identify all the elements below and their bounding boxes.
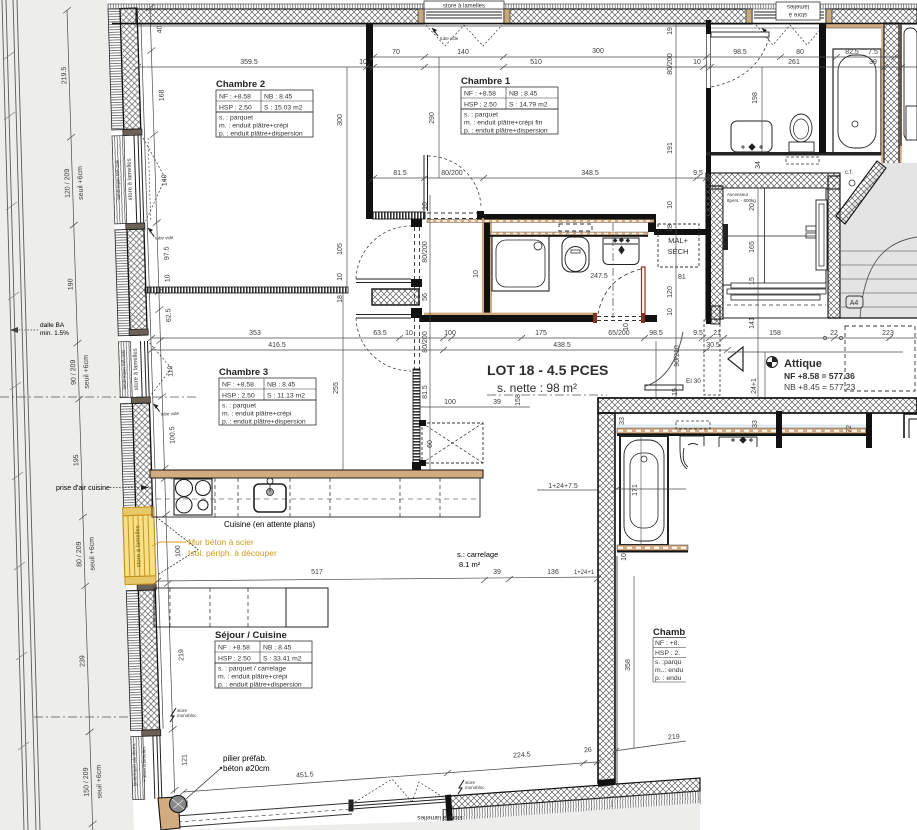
svg-text:c.f.: c.f. [845,170,853,176]
svg-text:100: 100 [444,330,456,337]
svg-text:7.5: 7.5 [868,49,878,56]
svg-text:300: 300 [337,114,344,126]
svg-text:175: 175 [535,330,547,337]
svg-text:NB : 8.45: NB : 8.45 [509,91,538,98]
svg-text:s.: carrelage: s.: carrelage [457,550,498,559]
svg-text:190: 190 [67,278,74,290]
svg-text:219: 219 [178,649,185,661]
svg-text:NF +8.58 = 577.36: NF +8.58 = 577.36 [784,371,855,381]
svg-text:191: 191 [667,142,674,154]
svg-text:béton ø20cm: béton ø20cm [223,764,270,773]
svg-text:56: 56 [422,293,429,301]
svg-text:19: 19 [667,27,674,35]
svg-text:21: 21 [713,330,721,337]
svg-text:p. : enduit plâtre+dispersion: p. : enduit plâtre+dispersion [218,682,302,689]
svg-text:72: 72 [846,425,853,433]
svg-text:Chambre 2: Chambre 2 [216,79,265,90]
svg-text:store à lamelles: store à lamelles [416,814,462,821]
svg-text:1+24+1: 1+24+1 [574,570,595,576]
svg-text:tube vide: tube vide [440,36,459,41]
svg-text:65/200: 65/200 [608,330,630,337]
svg-text:100: 100 [444,399,456,406]
svg-text:255: 255 [333,382,340,394]
svg-text:NF : +8.: NF : +8. [655,640,679,647]
svg-text:monobloc: monobloc [465,785,485,790]
svg-text:NB : 8.45: NB : 8.45 [263,645,292,652]
svg-text:353: 353 [249,330,261,337]
svg-text:10: 10 [693,59,701,66]
svg-text:150 / 209: 150 / 209 [83,767,91,797]
svg-text:97.5: 97.5 [163,246,170,260]
svg-text:El 30: El 30 [686,378,701,385]
svg-text:120: 120 [667,286,674,298]
svg-text:219.5: 219.5 [61,66,69,84]
svg-text:8pers. - 800kg: 8pers. - 800kg [727,198,756,203]
svg-text:m. : enduit plâtre+crépi: m. : enduit plâtre+crépi [219,123,289,130]
svg-text:10: 10 [359,59,367,66]
svg-text:81.5: 81.5 [422,385,429,399]
svg-text:15: 15 [749,277,756,285]
svg-text:33: 33 [752,420,759,428]
svg-text:98.5: 98.5 [733,49,747,56]
svg-text:lamelles: lamelles [787,3,809,9]
svg-text:40: 40 [157,25,164,33]
svg-text:80: 80 [796,49,804,56]
svg-text:80/200: 80/200 [422,241,429,263]
svg-text:416.5: 416.5 [268,342,286,349]
svg-text:10: 10 [473,270,480,278]
svg-text:seuil +6cm: seuil +6cm [83,355,91,389]
svg-text:165: 165 [749,241,756,253]
svg-text:Cuisine (en attente plans): Cuisine (en attente plans) [224,520,316,529]
svg-text:NF : +8.58: NF : +8.58 [464,91,496,98]
svg-text:MAL+: MAL+ [668,236,688,245]
svg-text:store à lamelles: store à lamelles [443,4,485,10]
svg-text:348.5: 348.5 [581,170,599,177]
svg-text:141: 141 [749,317,756,329]
svg-text:223: 223 [882,330,894,337]
svg-text:26: 26 [584,747,592,755]
svg-text:195: 195 [73,454,80,466]
svg-text:100: 100 [175,545,182,557]
svg-text:121: 121 [181,754,188,766]
svg-text:81.5: 81.5 [393,170,407,177]
svg-text:60: 60 [427,440,434,448]
svg-text:62.5: 62.5 [165,308,172,322]
svg-text:s. : parquet / carrelage: s. : parquet / carrelage [218,666,286,673]
svg-text:A4: A4 [850,300,859,307]
svg-text:monobloc: monobloc [177,713,197,718]
svg-text:tube vide: tube vide [155,235,174,241]
svg-text:S : 33.41 m2: S : 33.41 m2 [263,656,302,663]
svg-text:247.5: 247.5 [590,273,608,280]
svg-text:80/200: 80/200 [441,170,463,177]
svg-text:NF : +8.58: NF : +8.58 [218,645,250,652]
svg-text:22: 22 [830,330,838,337]
svg-text:90 / 209: 90 / 209 [70,359,78,385]
svg-text:s. : parquet: s. : parquet [222,403,256,410]
svg-text:81: 81 [678,274,686,281]
svg-text:9.5: 9.5 [693,330,703,337]
svg-text:98.5: 98.5 [649,330,663,337]
svg-text:168: 168 [159,89,166,101]
svg-text:m..: endu: m..: endu [655,667,684,674]
svg-text:m. : enduit plâtre+crépi: m. : enduit plâtre+crépi [218,674,288,681]
svg-text:m. : enduit plâtre+crépi: m. : enduit plâtre+crépi [222,411,292,418]
svg-text:39: 39 [493,569,501,576]
svg-text:p. : endu: p. : endu [655,675,682,682]
svg-text:359.5: 359.5 [240,59,258,66]
svg-text:S : 11.13 m2: S : 11.13 m2 [267,393,305,400]
svg-text:30.5: 30.5 [706,342,720,349]
svg-text:28: 28 [667,224,674,232]
svg-text:158: 158 [769,330,781,337]
svg-text:NB : 8.45: NB : 8.45 [267,382,296,389]
svg-text:HSP : 2.: HSP : 2. [655,650,680,657]
svg-text:Chambre 1: Chambre 1 [461,76,511,87]
svg-text:290: 290 [429,112,436,124]
svg-text:seuil +6cm: seuil +6cm [89,537,97,571]
svg-text:10: 10 [667,201,674,209]
svg-text:120 / 209: 120 / 209 [64,169,72,199]
svg-text:dalle BA: dalle BA [40,322,65,329]
svg-text:s. : parquet: s. : parquet [219,115,253,122]
svg-text:100.5: 100.5 [169,426,177,444]
svg-text:140: 140 [457,49,469,56]
svg-text:HSP : 2.50: HSP : 2.50 [218,656,251,663]
svg-text:s. nette : 98 m²: s. nette : 98 m² [497,381,577,395]
svg-text:p. : enduit plâtre+dispersion: p. : enduit plâtre+dispersion [464,128,548,135]
svg-text:prise d'air cuisine: prise d'air cuisine [56,485,110,492]
svg-text:8.1 m²: 8.1 m² [459,560,481,569]
svg-text:tube vide: tube vide [161,411,180,417]
svg-text:80/200: 80/200 [667,53,674,75]
svg-text:9.5: 9.5 [693,170,703,177]
svg-text:10: 10 [422,202,429,210]
svg-text:NF : +8.58: NF : +8.58 [222,382,254,389]
svg-text:p. : enduit plâtre+dispersion: p. : enduit plâtre+dispersion [219,131,303,138]
svg-text:m. : enduit plâtre+crépi fin: m. : enduit plâtre+crépi fin [464,120,543,127]
svg-text:Chambre 3: Chambre 3 [219,367,268,378]
svg-text:HSP : 2.50: HSP : 2.50 [219,105,252,112]
svg-text:239: 239 [79,655,86,667]
svg-text:451.5: 451.5 [296,771,314,779]
svg-text:82.5: 82.5 [845,49,859,56]
svg-text:10: 10 [667,308,674,316]
svg-text:358: 358 [625,659,632,671]
svg-text:219: 219 [668,734,680,742]
svg-text:10: 10 [621,553,628,561]
svg-text:NF : +8.58: NF : +8.58 [219,94,251,101]
svg-text:s. :parqu: s. :parqu [655,659,682,666]
svg-text:LOT 18 - 4.5 PCES: LOT 18 - 4.5 PCES [487,362,608,378]
svg-text:300: 300 [592,48,604,55]
svg-text:HSP : 2.50: HSP : 2.50 [464,102,497,109]
svg-text:Attique: Attique [784,358,822,370]
svg-text:63.5: 63.5 [373,330,387,337]
svg-text:p. : enduit plâtre+dispersion: p. : enduit plâtre+dispersion [222,419,306,426]
svg-text:517: 517 [311,569,323,576]
svg-text:171: 171 [632,484,639,496]
svg-text:NB : 8.45: NB : 8.45 [264,94,293,101]
svg-text:s. : parquet: s. : parquet [464,112,498,119]
svg-text:20: 20 [749,203,756,211]
svg-text:Chamb: Chamb [653,627,685,638]
svg-text:15: 15 [672,388,679,396]
svg-text:70: 70 [392,49,400,56]
svg-text:seuil +6cm: seuil +6cm [96,765,104,799]
svg-text:39: 39 [493,399,501,406]
svg-text:90/210: 90/210 [674,345,681,367]
svg-text:10: 10 [337,273,344,281]
svg-text:SÉCH: SÉCH [668,247,689,256]
svg-text:pilier préfab.: pilier préfab. [223,754,267,763]
svg-text:store à: store à [788,11,807,17]
svg-text:438.5: 438.5 [553,342,571,349]
svg-text:Mur béton à scier: Mur béton à scier [188,537,254,547]
svg-text:80/200: 80/200 [422,331,429,353]
svg-text:1+24+7.5: 1+24+7.5 [548,483,578,490]
svg-text:510: 510 [530,59,542,66]
svg-text:80 / 209: 80 / 209 [76,541,84,567]
svg-text:39: 39 [869,59,877,66]
svg-text:34: 34 [755,161,762,169]
svg-text:136: 136 [547,569,559,576]
svg-text:10: 10 [405,330,413,337]
svg-text:261: 261 [788,59,800,66]
svg-text:198: 198 [752,92,759,104]
svg-text:Isol. périph. à découper: Isol. périph. à découper [188,548,277,558]
svg-text:min. 1.5%: min. 1.5% [40,330,69,337]
svg-text:S : 15.03 m2: S : 15.03 m2 [264,105,303,112]
svg-text:Séjour / Cuisine: Séjour / Cuisine [215,630,287,641]
svg-text:105: 105 [337,243,344,255]
svg-text:Ascenseur: Ascenseur [727,192,749,197]
svg-text:224.5: 224.5 [513,751,531,759]
svg-text:158: 158 [515,394,522,406]
svg-text:33: 33 [619,417,626,425]
svg-text:10: 10 [164,274,171,282]
svg-text:24+1: 24+1 [751,378,758,394]
svg-text:seuil +6cm: seuil +6cm [77,166,85,200]
svg-text:110: 110 [167,365,174,376]
svg-text:HSP : 2.50: HSP : 2.50 [222,393,255,400]
svg-text:S : 14.79 m2: S : 14.79 m2 [509,102,548,109]
